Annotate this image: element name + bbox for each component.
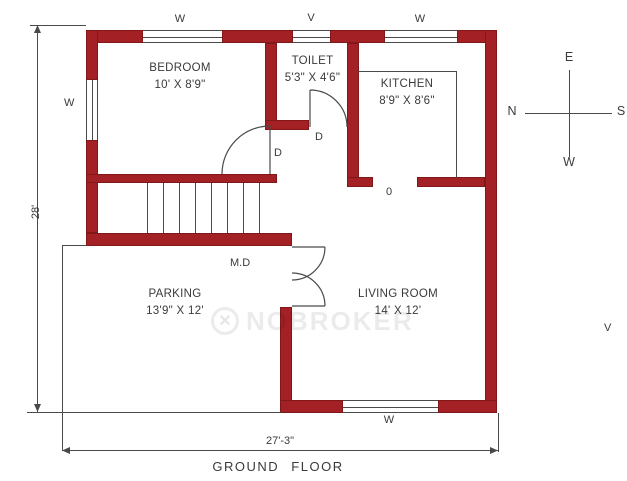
parking-label: PARKING 13'9" X 12' [105, 286, 245, 319]
parking-name: PARKING [105, 286, 245, 303]
compass-right: S [612, 104, 627, 118]
parking-bottom-line [27, 412, 281, 413]
left-dimension-label: 28' [30, 192, 42, 232]
toilet-dims: 5'3" X 4'6" [270, 70, 355, 87]
toilet-door-label: D [315, 131, 323, 143]
wall-hall-south [86, 233, 292, 246]
staircase [147, 183, 261, 233]
compass-left: N [503, 104, 521, 118]
bedroom-name: BEDROOM [110, 60, 250, 77]
wall-bedroom-south [86, 174, 277, 183]
floor-plan: E N S W ✕ NOBROKER BEDROOM 10' X 8'9" TO… [0, 0, 627, 481]
bedroom-left-window-label: W [64, 97, 74, 109]
kitchen-name: KITCHEN [357, 76, 457, 93]
compass-bottom: W [560, 155, 578, 169]
kitchen-label: KITCHEN 8'9" X 8'6" [357, 76, 457, 109]
living-room-name: LIVING ROOM [338, 286, 458, 303]
dimension-line-bottom [62, 450, 498, 451]
kitchen-dims: 8'9" X 8'6" [357, 93, 457, 110]
toilet-label: TOILET 5'3" X 4'6" [270, 53, 355, 86]
living-bottom-window [343, 400, 438, 413]
bedroom-dims: 10' X 8'9" [110, 77, 250, 94]
kitchen-top-window-label: W [412, 13, 428, 25]
wall-kitchen-south [417, 177, 485, 187]
kitchen-top-window [385, 30, 457, 43]
living-bottom-window-label: W [380, 414, 398, 426]
wall-right-outer [485, 30, 497, 413]
wall-kitchen-west-foot [347, 177, 373, 187]
bedroom-label: BEDROOM 10' X 8'9" [110, 60, 250, 93]
living-room-label: LIVING ROOM 14' X 12' [338, 286, 458, 319]
bedroom-top-window-label: W [172, 13, 188, 25]
wall-left-lower [86, 140, 98, 233]
bottom-dimension-label: 27'-3" [230, 435, 330, 447]
kitchen-north-partition-line [358, 71, 456, 72]
toilet-ventilator-label: V [303, 12, 319, 24]
parking-top-line [62, 245, 86, 246]
kitchen-opening-label: 0 [386, 186, 392, 198]
dimension-ext-top [30, 25, 86, 26]
wall-living-south-2 [438, 400, 497, 413]
toilet-ventilator [293, 30, 330, 43]
compass-top: E [560, 50, 578, 64]
right-ventilator-label: V [604, 322, 611, 334]
page-title: GROUND FLOOR [178, 459, 378, 474]
bedroom-door-label: D [274, 147, 282, 159]
wall-top-2 [222, 30, 293, 43]
wall-top-3 [330, 30, 385, 43]
living-room-dims: 14' X 12' [338, 303, 458, 320]
bedroom-top-window [143, 30, 222, 43]
wall-left-upper [86, 30, 98, 80]
dimension-ext-right [498, 413, 499, 452]
compass-horizontal-line [525, 113, 612, 114]
parking-left-line [62, 245, 63, 450]
toilet-name: TOILET [270, 53, 355, 70]
parking-dims: 13'9" X 12' [105, 303, 245, 320]
wall-living-south-1 [280, 400, 343, 413]
bedroom-left-window [86, 80, 98, 140]
wall-toilet-south [265, 120, 309, 130]
main-door-label: M.D [230, 257, 250, 269]
